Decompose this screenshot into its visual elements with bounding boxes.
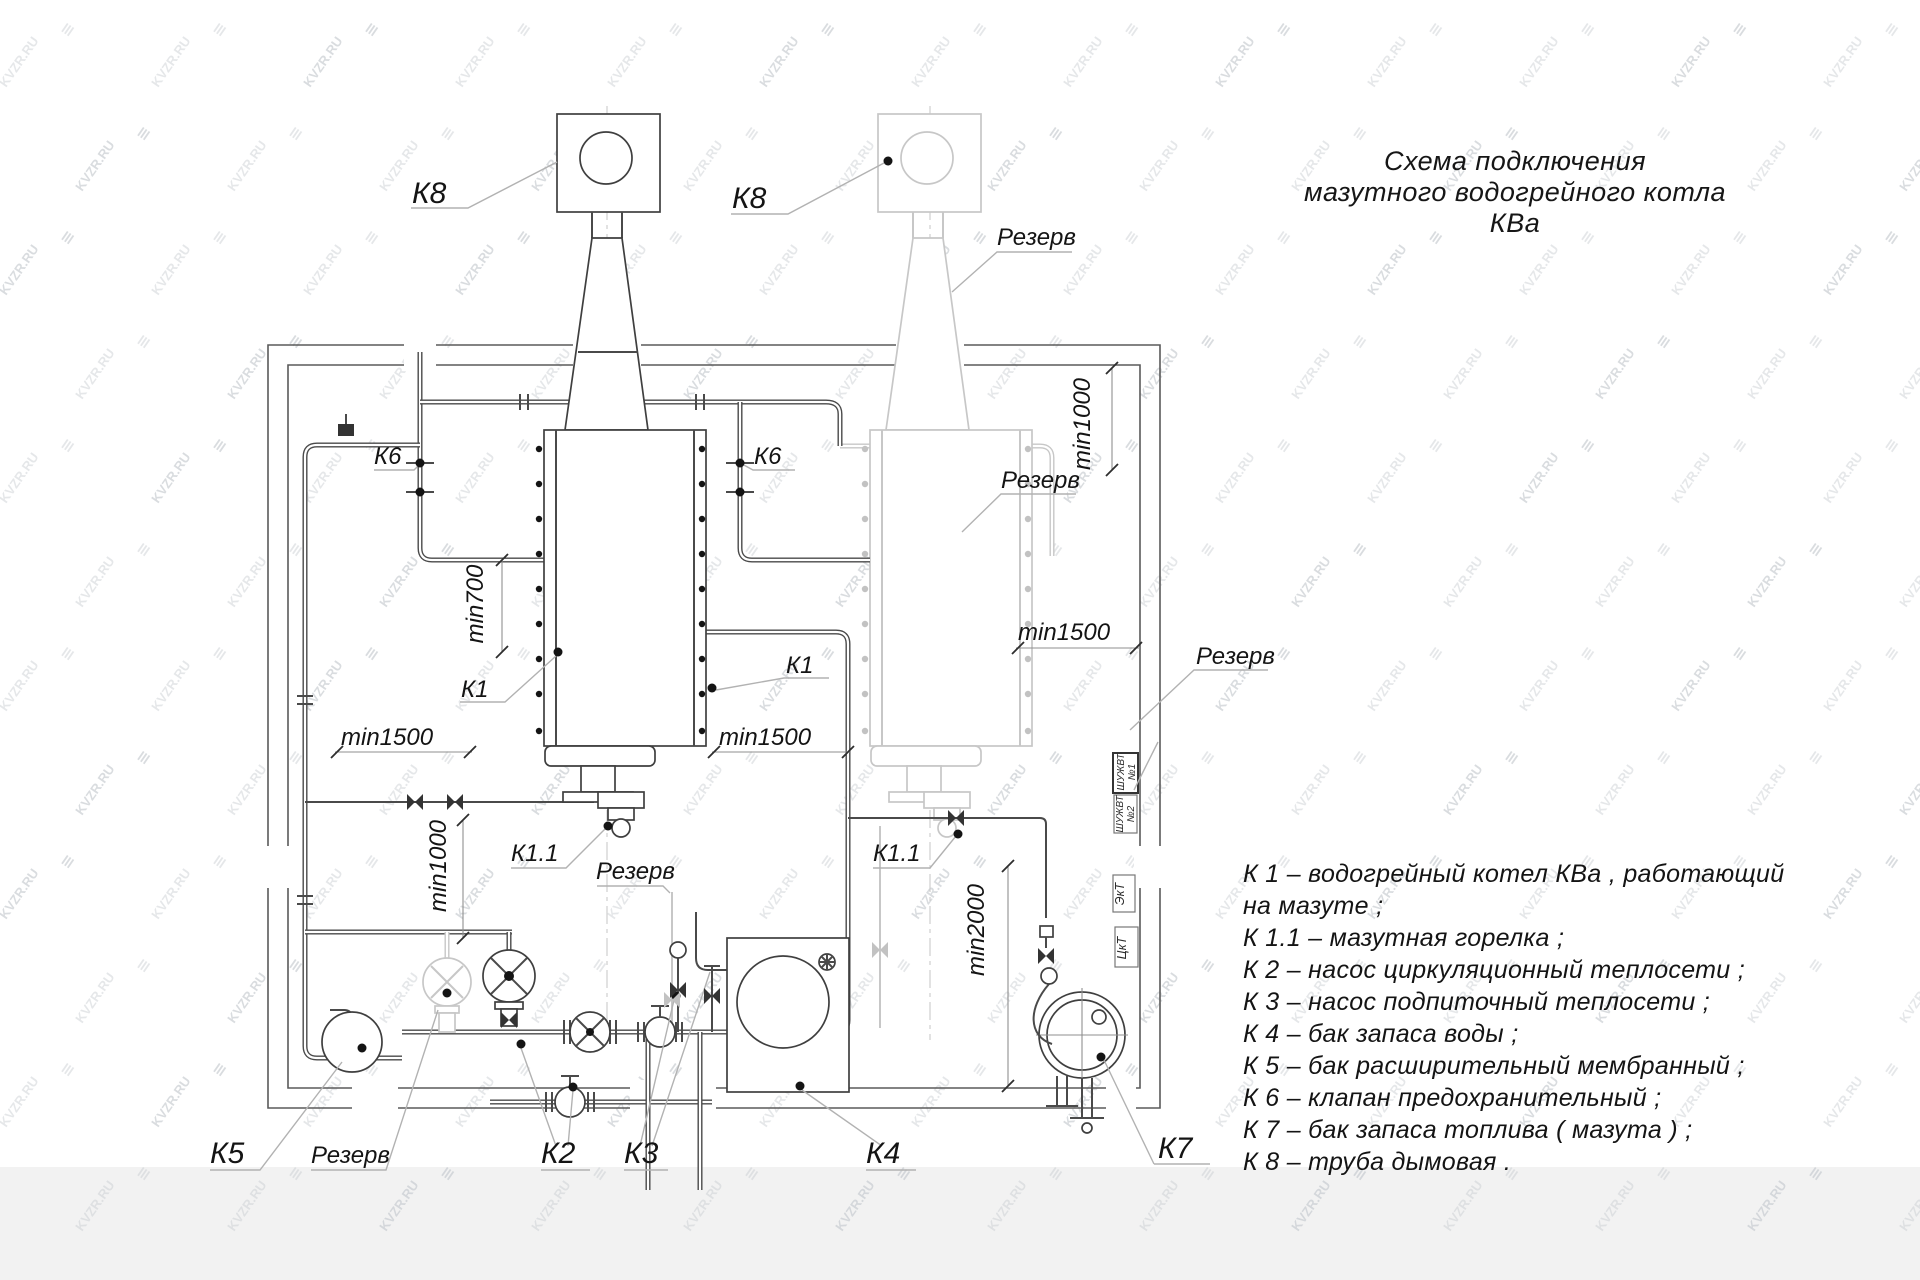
kvzr-watermark-text: KVZR.RU xyxy=(1516,242,1561,298)
label-min2000: min2000 xyxy=(963,883,990,976)
hatch-icon: ≡ xyxy=(1120,226,1143,248)
kvzr-watermark-text: KVZR.RU xyxy=(1440,762,1485,818)
kvzr-watermark-text: KVZR.RU xyxy=(1820,242,1865,298)
hatch-icon: ≡ xyxy=(1196,746,1219,768)
kvzr-watermark-text: KVZR.RU xyxy=(1592,554,1637,610)
hatch-icon: ≡ xyxy=(56,18,79,40)
kvzr-watermark-text: KVZR.RU xyxy=(224,346,269,402)
hatch-icon: ≡ xyxy=(1652,538,1675,560)
hatch-icon: ≡ xyxy=(1120,18,1143,40)
kvzr-watermark-text: KVZR.RU xyxy=(0,658,42,714)
kvzr-watermark-text: KVZR.RU xyxy=(148,1074,193,1130)
kvzr-watermark-text: KVZR.RU xyxy=(72,554,117,610)
hatch-icon: ≡ xyxy=(284,122,307,144)
hatch-icon: ≡ xyxy=(360,642,383,664)
kvzr-watermark-text: KVZR.RU xyxy=(148,450,193,506)
kvzr-watermark-text: KVZR.RU xyxy=(1744,346,1789,402)
hatch-icon: ≡ xyxy=(132,538,155,560)
hatch-icon: ≡ xyxy=(968,226,991,248)
legend: К 1 – водогрейный котел КВа , работающий… xyxy=(1243,858,1843,1178)
hatch-icon: ≡ xyxy=(208,18,231,40)
hatch-icon: ≡ xyxy=(56,226,79,248)
leader-dot xyxy=(736,459,745,468)
kvzr-watermark-text: KVZR.RU xyxy=(1136,970,1181,1026)
hatch-icon: ≡ xyxy=(1348,538,1371,560)
kvzr-watermark-text: KVZR.RU xyxy=(300,34,345,90)
hatch-icon: ≡ xyxy=(740,330,763,352)
kvzr-watermark-text: KVZR.RU xyxy=(300,242,345,298)
kvzr-watermark-text: KVZR.RU xyxy=(756,242,801,298)
kvzr-watermark-text: KVZR.RU xyxy=(1136,554,1181,610)
hatch-icon: ≡ xyxy=(1044,746,1067,768)
hatch-icon: ≡ xyxy=(132,122,155,144)
kvzr-watermark-text: KVZR.RU xyxy=(1668,658,1713,714)
leader-dot xyxy=(554,648,563,657)
hatch-icon: ≡ xyxy=(132,330,155,352)
label-k2: К2 xyxy=(541,1137,576,1170)
legend-line: К 3 – насос подпиточный теплосети ; xyxy=(1243,986,1843,1018)
label-rezerv-bottom: Резерв xyxy=(311,1142,390,1169)
kvzr-watermark-text: KVZR.RU xyxy=(376,762,421,818)
kvzr-watermark-text: KVZR.RU xyxy=(528,762,573,818)
kvzr-watermark-text: KVZR.RU xyxy=(1288,554,1333,610)
hatch-icon: ≡ xyxy=(360,18,383,40)
kvzr-watermark-text: KVZR.RU xyxy=(756,34,801,90)
label-rezerv-burner: Резерв xyxy=(596,858,675,885)
kvzr-watermark-text: KVZR.RU xyxy=(1592,346,1637,402)
label-min1500-mid: min1500 xyxy=(719,724,812,751)
kvzr-watermark-text: KVZR.RU xyxy=(680,138,725,194)
hatch-icon: ≡ xyxy=(436,746,459,768)
kvzr-watermark-text: KVZR.RU xyxy=(1364,242,1409,298)
hatch-icon: ≡ xyxy=(1880,434,1903,456)
hatch-icon: ≡ xyxy=(1500,122,1523,144)
hatch-icon: ≡ xyxy=(664,226,687,248)
kvzr-watermark-text: KVZR.RU xyxy=(1288,346,1333,402)
hatch-icon: ≡ xyxy=(436,330,459,352)
kvzr-watermark-text: KVZR.RU xyxy=(1668,450,1713,506)
drawing-title: Схема подключения мазутного водогрейного… xyxy=(1280,146,1750,239)
hatch-icon: ≡ xyxy=(816,642,839,664)
hatch-icon: ≡ xyxy=(1196,538,1219,560)
hatch-icon: ≡ xyxy=(208,1058,231,1080)
kvzr-watermark-text: KVZR.RU xyxy=(680,762,725,818)
kvzr-watermark-text: KVZR.RU xyxy=(224,970,269,1026)
leader-dot xyxy=(884,157,893,166)
kvzr-watermark-text: KVZR.RU xyxy=(72,762,117,818)
hatch-icon: ≡ xyxy=(1500,746,1523,768)
hatch-icon: ≡ xyxy=(1728,434,1751,456)
hatch-icon: ≡ xyxy=(208,226,231,248)
kvzr-watermark-text: KVZR.RU xyxy=(1592,762,1637,818)
hatch-icon: ≡ xyxy=(664,18,687,40)
kvzr-watermark-text: KVZR.RU xyxy=(908,1074,953,1130)
hatch-icon: ≡ xyxy=(816,226,839,248)
hatch-icon: ≡ xyxy=(968,1058,991,1080)
kvzr-watermark-text: KVZR.RU xyxy=(148,866,193,922)
kvzr-watermark-text: KVZR.RU xyxy=(1744,138,1789,194)
hatch-icon: ≡ xyxy=(1880,18,1903,40)
hatch-icon: ≡ xyxy=(436,122,459,144)
kvzr-watermark-text: KVZR.RU xyxy=(604,34,649,90)
kvzr-watermark-text: KVZR.RU xyxy=(148,34,193,90)
hatch-icon: ≡ xyxy=(1348,122,1371,144)
kvzr-watermark-text: KVZR.RU xyxy=(1516,34,1561,90)
hatch-icon: ≡ xyxy=(1272,434,1295,456)
hatch-icon: ≡ xyxy=(56,642,79,664)
kvzr-watermark-text: KVZR.RU xyxy=(224,138,269,194)
hatch-icon: ≡ xyxy=(1348,330,1371,352)
hatch-icon: ≡ xyxy=(1576,642,1599,664)
kvzr-watermark-text: KVZR.RU xyxy=(1516,658,1561,714)
legend-line: К 2 – насос циркуляционный теплосети ; xyxy=(1243,954,1843,986)
chimney-k8 xyxy=(557,114,660,430)
kvzr-watermark-text: KVZR.RU xyxy=(1668,34,1713,90)
drawing-title-line2: мазутного водогрейного котла КВа xyxy=(1280,177,1750,239)
hatch-icon: ≡ xyxy=(0,538,3,560)
label-cabinet-4: ЦкТ xyxy=(1115,935,1129,959)
leader-dot xyxy=(954,830,963,839)
page: { "page": {"background": "#ffffff", "bot… xyxy=(0,0,1920,1280)
kvzr-watermark-text: KVZR.RU xyxy=(984,138,1029,194)
label-k7: К7 xyxy=(1158,1132,1194,1165)
hatch-icon: ≡ xyxy=(0,746,3,768)
leader-dot xyxy=(569,1083,578,1092)
kvzr-watermark-text: KVZR.RU xyxy=(984,970,1029,1026)
expansion-tank-k5 xyxy=(322,1012,382,1072)
leader-dot xyxy=(416,459,425,468)
hatch-icon: ≡ xyxy=(1424,434,1447,456)
hatch-icon: ≡ xyxy=(1500,538,1523,560)
hatch-icon: ≡ xyxy=(132,746,155,768)
kvzr-watermark-text: KVZR.RU xyxy=(0,242,42,298)
label-k6-left: К6 xyxy=(374,443,402,470)
kvzr-watermark-text: KVZR.RU xyxy=(72,346,117,402)
hatch-icon: ≡ xyxy=(0,954,3,976)
hatch-icon: ≡ xyxy=(1044,538,1067,560)
legend-line: К 1 – водогрейный котел КВа , работающий xyxy=(1243,858,1843,890)
label-min1500-left: min1500 xyxy=(341,724,434,751)
kvzr-watermark-text: KVZR.RU xyxy=(452,866,497,922)
hatch-icon: ≡ xyxy=(816,18,839,40)
hatch-icon: ≡ xyxy=(360,850,383,872)
label-min1500-right: min1500 xyxy=(1018,619,1111,646)
kvzr-watermark-text: KVZR.RU xyxy=(1896,970,1920,1026)
kvzr-watermark-text: KVZR.RU xyxy=(148,658,193,714)
kvzr-watermark-text: KVZR.RU xyxy=(0,34,42,90)
legend-line: К 6 – клапан предохранительный ; xyxy=(1243,1082,1843,1114)
kvzr-watermark-text: KVZR.RU xyxy=(756,866,801,922)
label-rezerv-right: Резерв xyxy=(1196,643,1275,670)
hatch-icon: ≡ xyxy=(0,122,3,144)
kvzr-watermark-text: KVZR.RU xyxy=(1744,762,1789,818)
hatch-icon: ≡ xyxy=(56,1058,79,1080)
kvzr-watermark-text: KVZR.RU xyxy=(72,970,117,1026)
hatch-icon: ≡ xyxy=(1804,538,1827,560)
hatch-icon: ≡ xyxy=(1804,746,1827,768)
hatch-icon: ≡ xyxy=(56,434,79,456)
kvzr-watermark-text: KVZR.RU xyxy=(1136,762,1181,818)
kvzr-watermark-text: KVZR.RU xyxy=(1896,346,1920,402)
hatch-icon: ≡ xyxy=(1880,642,1903,664)
kvzr-watermark-text: KVZR.RU xyxy=(1896,554,1920,610)
hatch-icon: ≡ xyxy=(968,850,991,872)
hatch-icon: ≡ xyxy=(132,954,155,976)
hatch-icon: ≡ xyxy=(1424,18,1447,40)
hatch-icon: ≡ xyxy=(0,330,3,352)
hatch-icon: ≡ xyxy=(1652,330,1675,352)
kvzr-watermark-text: KVZR.RU xyxy=(908,34,953,90)
hatch-icon: ≡ xyxy=(1880,850,1903,872)
kvzr-watermark-text: KVZR.RU xyxy=(832,138,877,194)
hatch-icon: ≡ xyxy=(1728,18,1751,40)
hatch-icon: ≡ xyxy=(512,226,535,248)
kvzr-watermark-text: KVZR.RU xyxy=(452,242,497,298)
kvzr-watermark-text: KVZR.RU xyxy=(1820,450,1865,506)
hatch-icon: ≡ xyxy=(208,850,231,872)
label-k1-1-right: К1.1 xyxy=(873,840,921,867)
kvzr-watermark-text: KVZR.RU xyxy=(224,762,269,818)
kvzr-watermark-text: KVZR.RU xyxy=(908,866,953,922)
label-k8-right: К8 xyxy=(732,182,767,215)
hatch-icon: ≡ xyxy=(1348,746,1371,768)
kvzr-watermark-text: KVZR.RU xyxy=(1744,554,1789,610)
legend-line: К 7 – бак запаса топлива ( мазута ) ; xyxy=(1243,1114,1843,1146)
legend-line: К 1.1 – мазутная горелка ; xyxy=(1243,922,1843,954)
hatch-icon: ≡ xyxy=(1044,330,1067,352)
leader-dot xyxy=(708,684,717,693)
kvzr-watermark-text: KVZR.RU xyxy=(376,554,421,610)
kvzr-watermark-text: KVZR.RU xyxy=(1668,242,1713,298)
label-k8-left: К8 xyxy=(412,177,447,210)
legend-line: на мазуте ; xyxy=(1243,890,1843,922)
label-cabinet-3: ЭкТ xyxy=(1113,882,1127,906)
hatch-icon: ≡ xyxy=(436,538,459,560)
kvzr-watermark-text: KVZR.RU xyxy=(1364,658,1409,714)
hatch-icon: ≡ xyxy=(740,122,763,144)
hatch-icon: ≡ xyxy=(1196,122,1219,144)
kvzr-watermark-text: KVZR.RU xyxy=(452,34,497,90)
leader-dot xyxy=(1097,1053,1106,1062)
hatch-icon: ≡ xyxy=(1196,954,1219,976)
kvzr-watermark-text: KVZR.RU xyxy=(984,762,1029,818)
kvzr-watermark-text: KVZR.RU xyxy=(1440,346,1485,402)
kvzr-watermark-text: KVZR.RU xyxy=(528,346,573,402)
legend-line: К 5 – бак расширительный мембранный ; xyxy=(1243,1050,1843,1082)
hatch-icon: ≡ xyxy=(1272,18,1295,40)
hatch-icon: ≡ xyxy=(360,226,383,248)
kvzr-watermark-text: KVZR.RU xyxy=(376,970,421,1026)
kvzr-watermark-text: KVZR.RU xyxy=(1820,34,1865,90)
hatch-icon: ≡ xyxy=(1880,1058,1903,1080)
label-rezerv-boiler: Резерв xyxy=(1001,467,1080,494)
kvzr-watermark-text: KVZR.RU xyxy=(1212,242,1257,298)
legend-line: К 4 – бак запаса воды ; xyxy=(1243,1018,1843,1050)
hatch-icon: ≡ xyxy=(1424,642,1447,664)
hatch-icon: ≡ xyxy=(816,434,839,456)
hatch-icon: ≡ xyxy=(1576,18,1599,40)
kvzr-watermark-text: KVZR.RU xyxy=(1440,554,1485,610)
water-tank-k4 xyxy=(727,938,849,1092)
hatch-icon: ≡ xyxy=(1272,642,1295,664)
hatch-icon: ≡ xyxy=(208,434,231,456)
hatch-icon: ≡ xyxy=(1044,122,1067,144)
kvzr-watermark-text: KVZR.RU xyxy=(0,866,42,922)
hatch-icon: ≡ xyxy=(56,850,79,872)
kvzr-watermark-text: KVZR.RU xyxy=(1896,138,1920,194)
hatch-icon: ≡ xyxy=(1728,642,1751,664)
kvzr-watermark-text: KVZR.RU xyxy=(0,450,42,506)
label-k1-right: К1 xyxy=(786,652,814,679)
leader-dot xyxy=(796,1082,805,1091)
kvzr-watermark-text: KVZR.RU xyxy=(832,762,877,818)
hatch-icon: ≡ xyxy=(968,18,991,40)
leader-dot xyxy=(604,822,613,831)
kvzr-watermark-text: KVZR.RU xyxy=(148,242,193,298)
leader-dot xyxy=(416,488,425,497)
label-k3: К3 xyxy=(624,1137,659,1170)
pump-group-k2 xyxy=(423,950,610,1052)
hatch-icon: ≡ xyxy=(1196,330,1219,352)
label-min1000-top: min1000 xyxy=(1069,377,1096,470)
label-k1-1-left: К1.1 xyxy=(511,840,559,867)
hatch-icon: ≡ xyxy=(512,434,535,456)
kvzr-watermark-text: KVZR.RU xyxy=(1364,450,1409,506)
hatch-icon: ≡ xyxy=(1576,434,1599,456)
label-k1-left: К1 xyxy=(461,676,489,703)
reserve-chimney xyxy=(878,114,981,430)
hatch-icon: ≡ xyxy=(1804,122,1827,144)
kvzr-watermark-text: KVZR.RU xyxy=(1060,658,1105,714)
kvzr-watermark-text: KVZR.RU xyxy=(1364,34,1409,90)
hatch-icon: ≡ xyxy=(512,18,535,40)
hatch-icon: ≡ xyxy=(816,850,839,872)
hatch-icon: ≡ xyxy=(1652,122,1675,144)
hatch-icon: ≡ xyxy=(1652,746,1675,768)
label-min1000-bottom: min1000 xyxy=(425,819,452,912)
wall-valve xyxy=(338,414,354,436)
leader-dot xyxy=(358,1044,367,1053)
label-min700: min700 xyxy=(462,564,489,643)
legend-line: К 8 – труба дымовая . xyxy=(1243,1146,1843,1178)
hatch-icon: ≡ xyxy=(512,642,535,664)
kvzr-watermark-text: KVZR.RU xyxy=(0,1074,42,1130)
label-rezerv-chimney: Резерв xyxy=(997,224,1076,251)
label-k5: К5 xyxy=(210,1137,245,1170)
kvzr-watermark-text: KVZR.RU xyxy=(1060,34,1105,90)
kvzr-watermark-text: KVZR.RU xyxy=(224,554,269,610)
label-k6-right: К6 xyxy=(754,443,782,470)
leader-dot xyxy=(736,488,745,497)
burner-k1-1 xyxy=(598,792,644,808)
label-k4: К4 xyxy=(866,1137,900,1170)
leader-dot xyxy=(517,1040,526,1049)
kvzr-watermark-text: KVZR.RU xyxy=(1212,34,1257,90)
hatch-icon: ≡ xyxy=(1804,330,1827,352)
leader-dot xyxy=(443,989,452,998)
kvzr-watermark-text: KVZR.RU xyxy=(300,1074,345,1130)
kvzr-watermark-text: KVZR.RU xyxy=(832,346,877,402)
kvzr-watermark-text: KVZR.RU xyxy=(1060,866,1105,922)
kvzr-watermark-text: KVZR.RU xyxy=(452,450,497,506)
kvzr-watermark-text: KVZR.RU xyxy=(1136,346,1181,402)
hatch-icon: ≡ xyxy=(1880,226,1903,248)
hatch-icon: ≡ xyxy=(284,330,307,352)
hatch-icon: ≡ xyxy=(892,954,915,976)
kvzr-watermark-text: KVZR.RU xyxy=(1136,138,1181,194)
kvzr-watermark-text: KVZR.RU xyxy=(72,138,117,194)
kvzr-watermark-text: KVZR.RU xyxy=(1212,450,1257,506)
kvzr-watermark-text: KVZR.RU xyxy=(680,346,725,402)
kvzr-watermark-text: KVZR.RU xyxy=(984,346,1029,402)
kvzr-watermark-text: KVZR.RU xyxy=(1896,762,1920,818)
kvzr-watermark-text: KVZR.RU xyxy=(1516,450,1561,506)
hatch-icon: ≡ xyxy=(1500,330,1523,352)
drawing-title-line1: Схема подключения xyxy=(1280,146,1750,177)
kvzr-watermark-text: KVZR.RU xyxy=(1820,658,1865,714)
kvzr-watermark-text: KVZR.RU xyxy=(1288,762,1333,818)
hatch-icon: ≡ xyxy=(208,642,231,664)
